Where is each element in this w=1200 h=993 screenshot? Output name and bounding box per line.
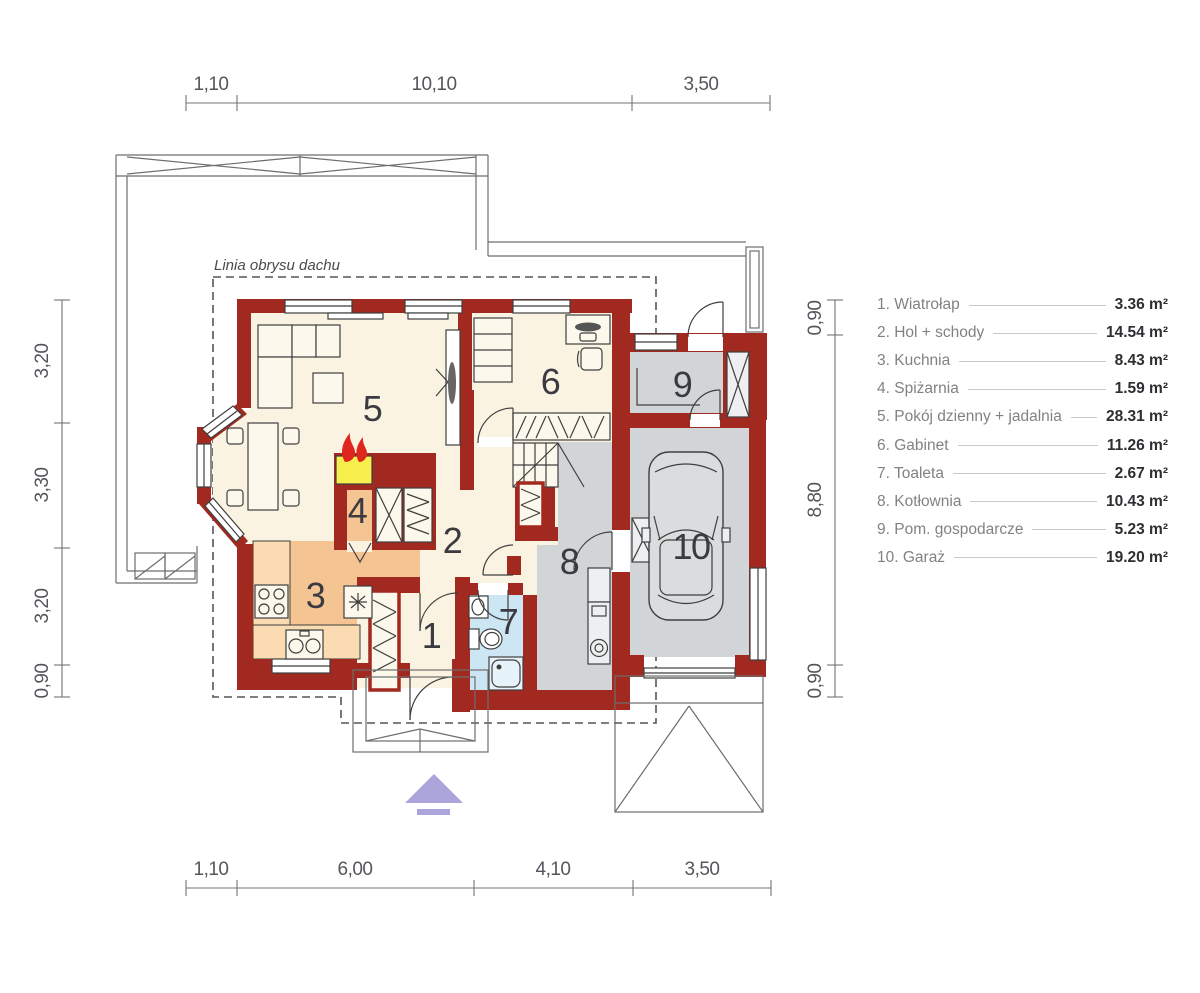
legend-area: 14.54 m² [1106,324,1168,342]
washbasin-icon [469,596,488,618]
legend-row: 8. Kotłownia10.43 m² [877,488,1168,516]
legend-label: 6. Gabinet [877,437,949,455]
garage-canopy [615,676,763,812]
window [285,300,352,313]
room-number-1: 1 [422,615,441,656]
blind [408,313,448,319]
pantry-cabinet-x [376,488,402,542]
legend-area: 11.26 m² [1107,437,1168,455]
understair-closet [518,483,543,527]
legend-leader-line [968,389,1106,390]
legend-label: 5. Pokój dzienny + jadalnia [877,408,1062,426]
svg-text:1,10: 1,10 [194,859,229,880]
svg-text:0,90: 0,90 [805,664,826,699]
legend-label: 4. Spiżarnia [877,380,959,398]
svg-text:8,80: 8,80 [805,483,826,518]
legend-leader-line [959,361,1105,362]
window [513,300,570,313]
svg-text:1,10: 1,10 [194,74,229,95]
room-number-8: 8 [560,541,579,582]
legend-row: 9. Pom. gospodarcze5.23 m² [877,516,1168,544]
legend-row: 2. Hol + schody14.54 m² [877,319,1168,347]
room-number-7: 7 [499,601,518,642]
boiler-icon [588,568,610,664]
hall-closet [370,591,399,690]
room-number-10: 10 [672,526,710,567]
legend-area: 28.31 m² [1106,408,1168,426]
legend-label: 9. Pom. gospodarcze [877,521,1023,539]
room-number-9: 9 [673,364,692,405]
legend-label: 2. Hol + schody [877,324,984,342]
legend-leader-line [1032,529,1105,530]
legend-label: 7. Toaleta [877,465,944,483]
svg-text:0,90: 0,90 [32,664,53,699]
window [405,300,462,313]
svg-text:4,10: 4,10 [536,859,571,880]
legend-area: 5.23 m² [1115,521,1168,539]
legend-leader-line [969,305,1106,306]
legend-area: 8.43 m² [1115,352,1168,370]
legend-area: 10.43 m² [1106,493,1168,511]
legend: 1. Wiatrołap3.36 m² 2. Hol + schody14.54… [877,291,1168,572]
svg-text:3,50: 3,50 [684,74,719,95]
legend-row: 5. Pokój dzienny + jadalnia28.31 m² [877,403,1168,431]
svg-text:3,50: 3,50 [685,859,720,880]
legend-row: 7. Toaleta2.67 m² [877,460,1168,488]
svg-text:6,00: 6,00 [338,859,373,880]
legend-area: 19.20 m² [1106,549,1168,567]
entrance-arrow-icon [405,774,463,815]
legend-leader-line [993,333,1097,334]
room-number-4: 4 [348,490,367,531]
legend-leader-line [953,473,1106,474]
blind [328,313,383,319]
dimension-top: 1,10 10,10 3,50 [186,74,770,111]
room-number-6: 6 [541,361,560,402]
legend-row: 10. Garaż19.20 m² [877,544,1168,572]
legend-area: 2.67 m² [1115,465,1168,483]
legend-label: 10. Garaż [877,549,945,567]
sink-icon [286,630,323,659]
legend-area: 1.59 m² [1115,380,1168,398]
bay-window [197,444,211,487]
dimension-right: 0,90 8,80 0,90 [805,300,843,698]
legend-label: 1. Wiatrołap [877,296,960,314]
legend-label: 8. Kotłownia [877,493,961,511]
roof-outline-label: Linia obrysu dachu [214,257,341,274]
wardrobe-icon [513,413,610,440]
legend-label: 3. Kuchnia [877,352,950,370]
legend-leader-line [954,557,1097,558]
legend-row: 4. Spiżarnia1.59 m² [877,375,1168,403]
desk-lamp-icon [575,323,601,332]
legend-leader-line [970,501,1097,502]
legend-area: 3.36 m² [1115,296,1168,314]
coffee-table-icon [313,373,343,403]
legend-row: 1. Wiatrołap3.36 m² [877,291,1168,319]
svg-text:3,20: 3,20 [32,589,53,624]
cooktop-icon [255,585,288,618]
utility-closet-x [727,352,749,417]
shower-icon [489,657,523,690]
window [750,568,766,660]
utility-entry-door [688,302,723,337]
room-number-5: 5 [363,388,382,429]
bookcase-icon [474,318,512,382]
legend-row: 3. Kuchnia8.43 m² [877,347,1168,375]
legend-leader-line [1071,417,1097,418]
office-chair-icon [581,348,602,370]
svg-text:3,20: 3,20 [32,344,53,379]
room-number-2: 2 [443,520,462,561]
toilet-icon [469,629,502,649]
pantry-cabinet-shelves [404,488,432,542]
svg-text:10,10: 10,10 [411,74,456,95]
dimension-bottom: 1,10 6,00 4,10 3,50 [186,859,771,896]
legend-leader-line [958,445,1098,446]
window [635,334,677,350]
window [272,659,330,673]
floor-plan-page: { "roof_outline_label": "Linia obrysu da… [0,0,1200,993]
legend-row: 6. Gabinet11.26 m² [877,431,1168,459]
svg-text:0,90: 0,90 [805,301,826,336]
dimension-left: 3,20 3,30 3,20 0,90 [32,300,70,698]
room-number-3: 3 [306,575,325,616]
svg-text:3,30: 3,30 [32,468,53,503]
fridge-icon [344,586,372,618]
